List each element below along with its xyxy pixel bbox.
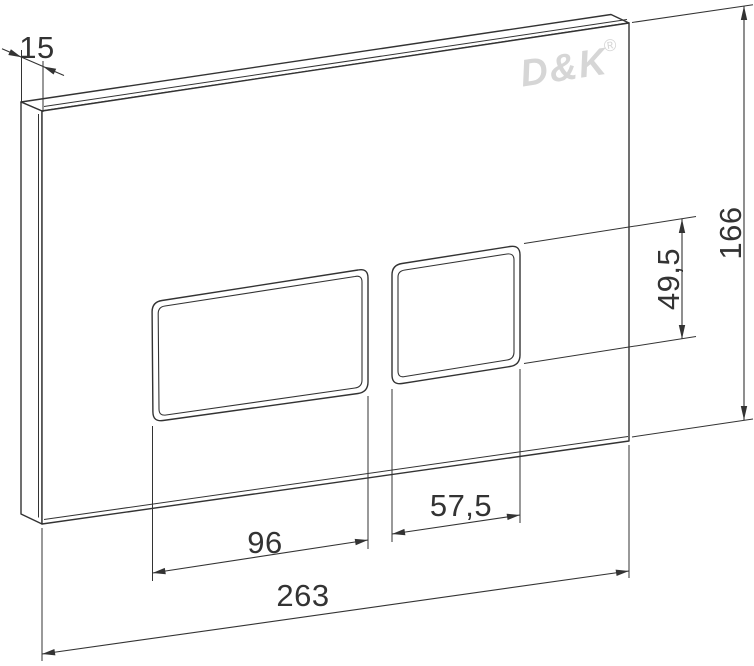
arrowhead [741, 6, 747, 20]
dimension-plate-height-label: 166 [713, 206, 748, 259]
flush-plate-technical-drawing: D&K ® 15 166 [0, 0, 754, 666]
small-flush-button [392, 246, 520, 383]
extension-line [632, 5, 753, 23]
extension-line [632, 419, 753, 437]
dimension-thickness-label: 15 [19, 30, 54, 65]
arrowhead [741, 406, 747, 420]
arrowhead [616, 570, 629, 576]
arrowhead [43, 67, 56, 75]
dimension-plate-height: 166 [632, 5, 753, 437]
arrowhead [392, 529, 405, 535]
arrowhead [153, 568, 166, 574]
small-button-outer-outline [392, 246, 520, 383]
dimension-button-height-label: 49,5 [651, 248, 686, 310]
dimension-line [42, 571, 629, 654]
arrowhead [679, 325, 685, 339]
drawing-svg: D&K ® 15 166 [0, 0, 754, 666]
dimension-large-button-width-label: 96 [247, 525, 282, 560]
arrowhead [42, 649, 55, 655]
arrowhead [679, 219, 685, 233]
arrowhead [355, 539, 368, 545]
arrowhead [507, 514, 520, 520]
dimension-small-button-width-label: 57,5 [430, 488, 492, 523]
dimension-plate-width-label: 263 [276, 578, 329, 613]
